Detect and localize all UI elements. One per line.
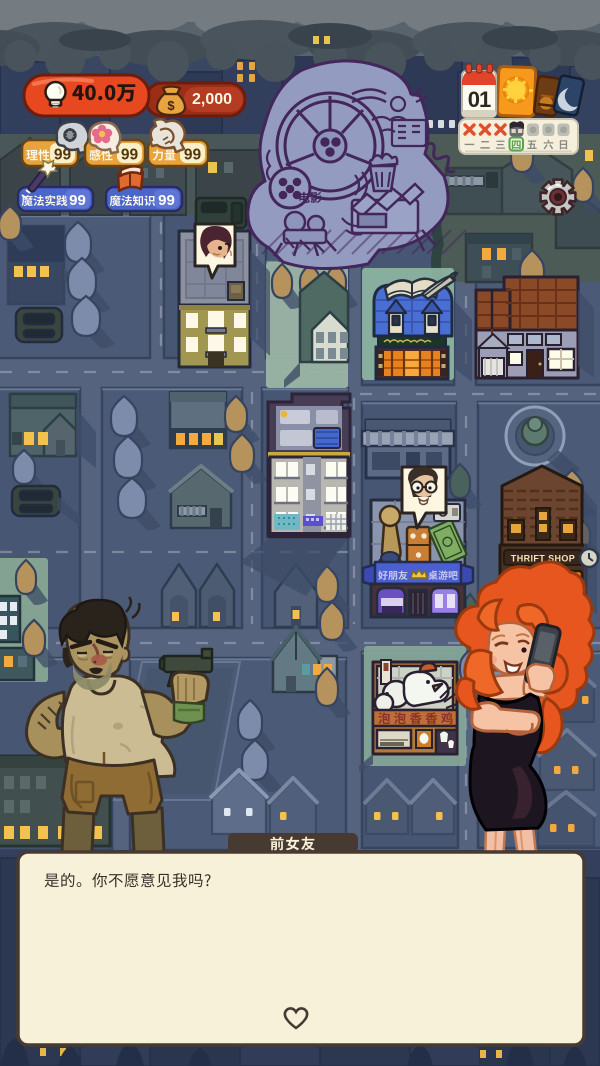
svg-text:2,000: 2,000 bbox=[192, 91, 232, 108]
svg-text:99: 99 bbox=[121, 147, 139, 164]
svg-text:99: 99 bbox=[158, 192, 175, 209]
svg-text:99: 99 bbox=[69, 192, 86, 209]
svg-text:99: 99 bbox=[184, 147, 202, 164]
svg-text:01: 01 bbox=[468, 87, 491, 112]
svg-text:$: $ bbox=[167, 98, 175, 113]
